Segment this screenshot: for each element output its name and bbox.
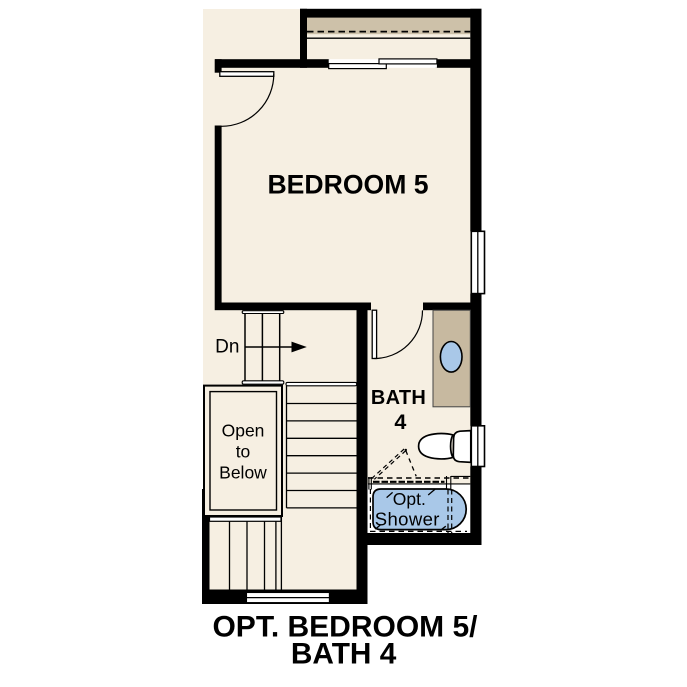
svg-text:Opt.: Opt. xyxy=(393,489,426,509)
svg-text:Shower: Shower xyxy=(375,508,440,529)
svg-text:Open: Open xyxy=(222,421,265,441)
svg-text:4: 4 xyxy=(394,410,406,434)
svg-text:to: to xyxy=(236,442,251,462)
svg-text:Dn: Dn xyxy=(215,337,239,358)
svg-text:BEDROOM 5: BEDROOM 5 xyxy=(267,170,428,200)
svg-text:Below: Below xyxy=(219,463,267,483)
svg-text:BATH 4: BATH 4 xyxy=(291,638,397,671)
svg-text:BATH: BATH xyxy=(371,387,426,409)
